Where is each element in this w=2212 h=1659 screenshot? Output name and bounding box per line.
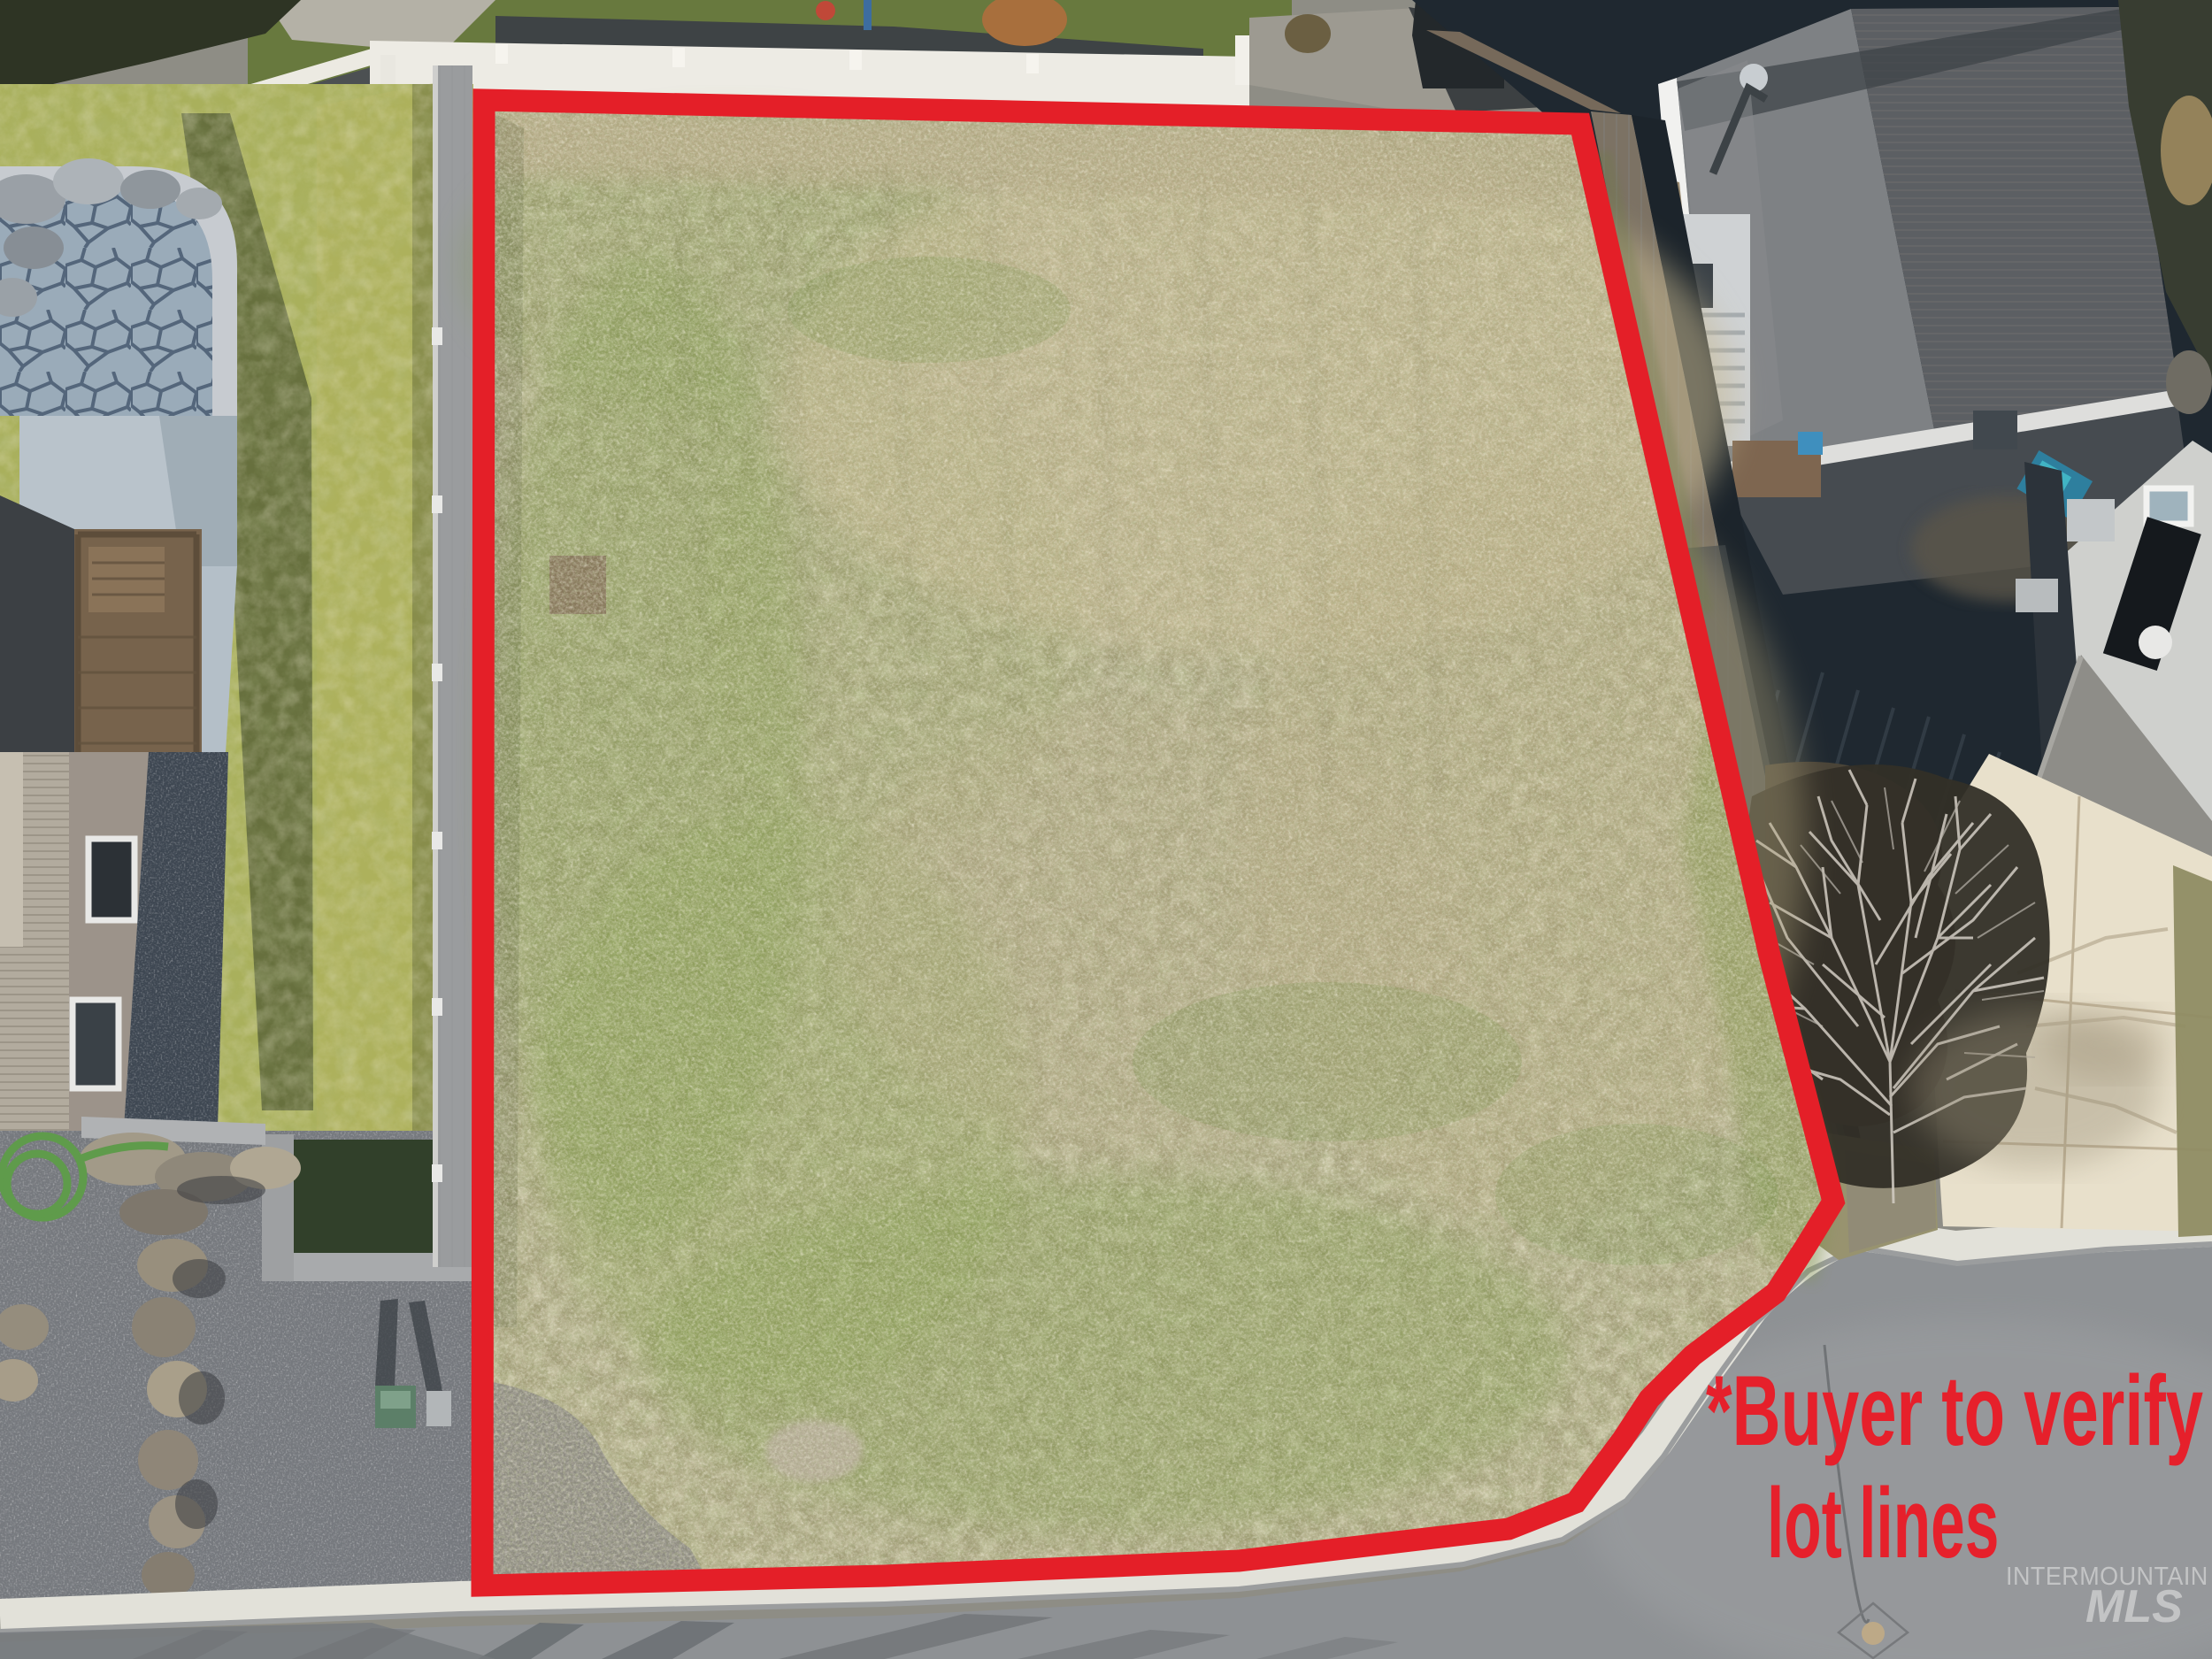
svg-text:lot lines: lot lines (1767, 1468, 1999, 1578)
svg-text:MLS: MLS (2085, 1581, 2183, 1632)
svg-text:*Buyer to verify: *Buyer to verify (1706, 1356, 2203, 1466)
